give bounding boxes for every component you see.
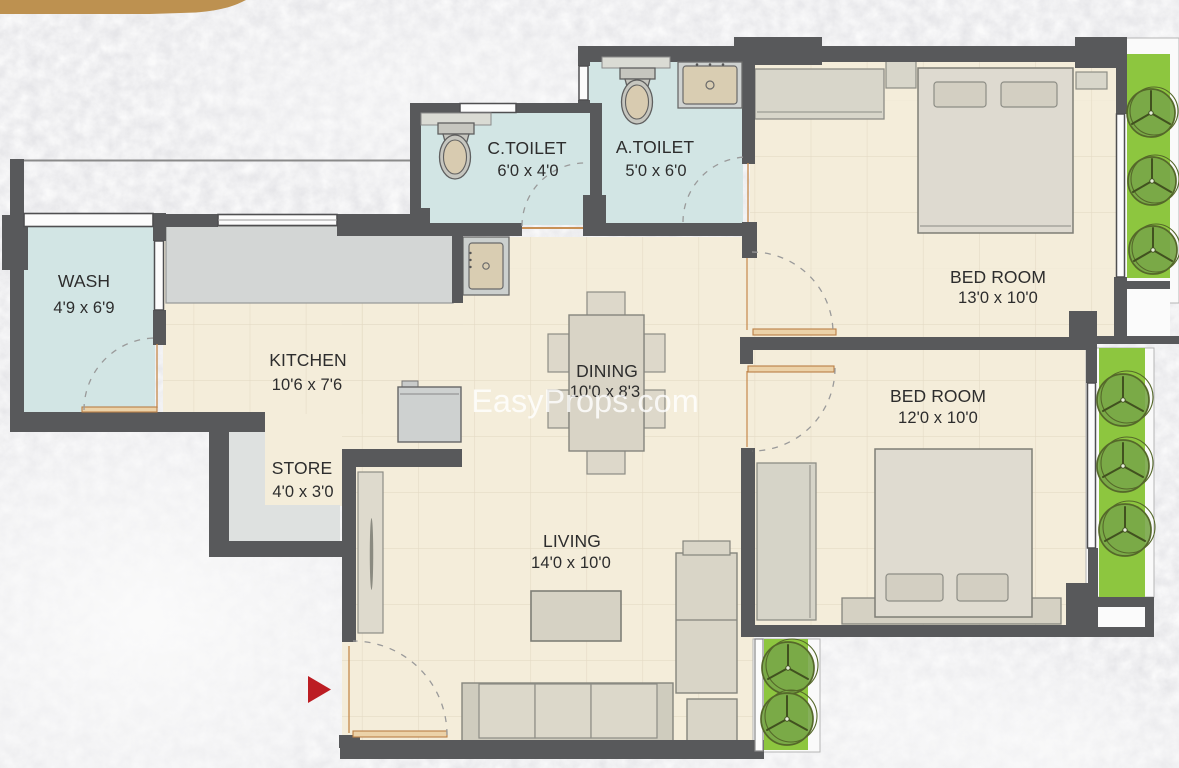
svg-text:12'0 x 10'0: 12'0 x 10'0	[898, 409, 978, 427]
svg-text:4'0 x 3'0: 4'0 x 3'0	[272, 483, 333, 501]
svg-text:4'9 x 6'9: 4'9 x 6'9	[53, 299, 114, 317]
svg-text:LIVING: LIVING	[543, 531, 601, 551]
svg-text:EasyProps.com: EasyProps.com	[471, 383, 699, 419]
svg-text:WASH: WASH	[58, 271, 110, 291]
svg-text:10'6 x 7'6: 10'6 x 7'6	[272, 376, 343, 394]
svg-text:STORE: STORE	[272, 458, 332, 478]
svg-text:KITCHEN: KITCHEN	[269, 350, 347, 370]
svg-text:A.TOILET: A.TOILET	[616, 137, 694, 157]
svg-text:6'0 x 4'0: 6'0 x 4'0	[497, 162, 558, 180]
svg-text:14'0 x 10'0: 14'0 x 10'0	[531, 554, 611, 572]
svg-text:DINING: DINING	[576, 361, 638, 381]
svg-text:BED ROOM: BED ROOM	[950, 267, 1046, 287]
svg-text:BED ROOM: BED ROOM	[890, 386, 986, 406]
svg-text:13'0 x 10'0: 13'0 x 10'0	[958, 289, 1038, 307]
svg-text:C.TOILET: C.TOILET	[487, 138, 566, 158]
svg-text:5'0 x 6'0: 5'0 x 6'0	[625, 162, 686, 180]
